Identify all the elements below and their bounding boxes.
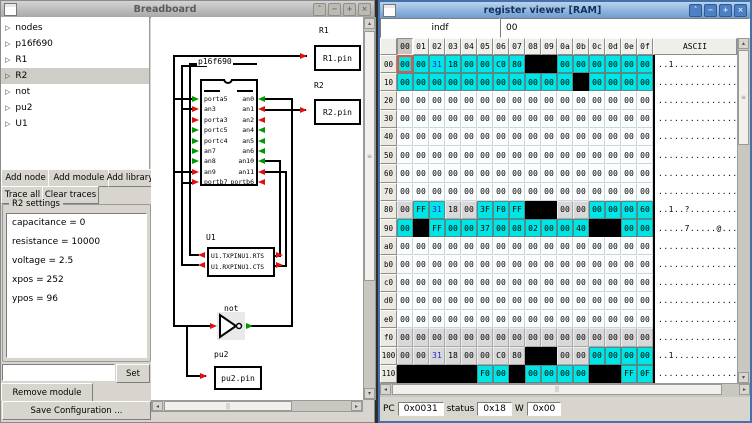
ram-cell-00-8[interactable] [525, 55, 541, 73]
ram-cell-d0-3[interactable]: 00 [445, 292, 461, 310]
scroll-up-icon[interactable]: ▴ [364, 18, 375, 29]
set-button[interactable]: Set [116, 364, 150, 383]
ram-cell-e0-9[interactable]: 00 [541, 310, 557, 328]
scroll-down-icon[interactable]: ▾ [738, 372, 749, 383]
ram-cell-60-13[interactable]: 00 [605, 164, 621, 182]
ram-cell-80-6[interactable]: F0 [493, 201, 509, 219]
tree-item-R1[interactable]: ▷R1 [1, 52, 149, 68]
ram-cell-70-8[interactable]: 00 [525, 183, 541, 201]
ram-cell-50-15[interactable]: 00 [637, 146, 653, 164]
ram-cell-100-13[interactable]: 00 [605, 347, 621, 365]
ram-cell-b0-0[interactable]: 00 [397, 255, 413, 273]
ram-cell-70-9[interactable]: 00 [541, 183, 557, 201]
ram-cell-c0-3[interactable]: 00 [445, 274, 461, 292]
ram-cell-f0-10[interactable]: 00 [557, 328, 573, 346]
ram-cell-50-13[interactable]: 00 [605, 146, 621, 164]
ram-cell-90-1[interactable] [413, 219, 429, 237]
ram-cell-d0-4[interactable]: 00 [461, 292, 477, 310]
ram-cell-b0-13[interactable]: 00 [605, 255, 621, 273]
ram-cell-20-6[interactable]: 00 [493, 91, 509, 109]
ram-cell-c0-8[interactable]: 00 [525, 274, 541, 292]
ram-cell-40-6[interactable]: 00 [493, 128, 509, 146]
ram-cell-60-3[interactable]: 00 [445, 164, 461, 182]
ram-cell-70-10[interactable]: 00 [557, 183, 573, 201]
ram-cell-10-8[interactable]: 00 [525, 73, 541, 91]
setting-entry[interactable]: xpos = 252 [7, 271, 146, 290]
scroll-up-icon[interactable]: ▴ [738, 38, 749, 49]
ram-cell-100-12[interactable]: 00 [589, 347, 605, 365]
remove-module-button[interactable]: Remove module [1, 383, 93, 402]
ram-cell-d0-13[interactable]: 00 [605, 292, 621, 310]
ram-cell-e0-5[interactable]: 00 [477, 310, 493, 328]
ram-cell-e0-14[interactable]: 00 [621, 310, 637, 328]
ram-cell-20-14[interactable]: 00 [621, 91, 637, 109]
ram-cell-80-12[interactable]: 00 [589, 201, 605, 219]
ram-cell-20-10[interactable]: 00 [557, 91, 573, 109]
minimize-button[interactable]: − [328, 3, 341, 16]
ram-cell-60-11[interactable]: 00 [573, 164, 589, 182]
ram-cell-110-6[interactable]: 00 [493, 365, 509, 383]
ram-cell-60-1[interactable]: 00 [413, 164, 429, 182]
ram-cell-f0-12[interactable]: 00 [589, 328, 605, 346]
ram-cell-10-6[interactable]: 00 [493, 73, 509, 91]
tree-item-pu2[interactable]: ▷pu2 [1, 100, 149, 116]
ram-cell-30-15[interactable]: 00 [637, 110, 653, 128]
ram-cell-100-4[interactable]: 00 [461, 347, 477, 365]
ram-cell-20-3[interactable]: 00 [445, 91, 461, 109]
module-attribute-input[interactable] [2, 364, 115, 381]
ram-cell-110-1[interactable] [413, 365, 429, 383]
ram-cell-c0-5[interactable]: 00 [477, 274, 493, 292]
r1-pin-box[interactable]: R1.pin [314, 45, 361, 71]
ram-cell-50-0[interactable]: 00 [397, 146, 413, 164]
ram-cell-70-15[interactable]: 00 [637, 183, 653, 201]
ram-cell-20-1[interactable]: 00 [413, 91, 429, 109]
pin-arrow-an6[interactable] [258, 148, 265, 154]
status-value[interactable]: 0x18 [477, 402, 512, 416]
ram-cell-b0-8[interactable]: 00 [525, 255, 541, 273]
ram-cell-30-10[interactable]: 00 [557, 110, 573, 128]
ram-cell-90-8[interactable]: 02 [525, 219, 541, 237]
ram-cell-00-11[interactable]: 00 [573, 55, 589, 73]
ram-cell-b0-14[interactable]: 00 [621, 255, 637, 273]
ram-cell-f0-7[interactable]: 00 [509, 328, 525, 346]
pin-arrow-portc5[interactable] [192, 127, 199, 133]
ram-cell-50-1[interactable]: 00 [413, 146, 429, 164]
ram-cell-30-11[interactable]: 00 [573, 110, 589, 128]
ram-cell-20-12[interactable]: 00 [589, 91, 605, 109]
ram-cell-e0-3[interactable]: 00 [445, 310, 461, 328]
ram-cell-f0-5[interactable]: 00 [477, 328, 493, 346]
ram-cell-b0-4[interactable]: 00 [461, 255, 477, 273]
expander-icon[interactable]: ▷ [5, 40, 10, 48]
ram-cell-110-14[interactable]: FF [621, 365, 637, 383]
ram-cell-100-15[interactable]: 00 [637, 347, 653, 365]
ram-cell-a0-11[interactable]: 00 [573, 237, 589, 255]
ram-cell-80-4[interactable]: 00 [461, 201, 477, 219]
ram-cell-60-15[interactable]: 00 [637, 164, 653, 182]
ram-cell-e0-0[interactable]: 00 [397, 310, 413, 328]
ram-cell-110-0[interactable] [397, 365, 413, 383]
ram-cell-d0-5[interactable]: 00 [477, 292, 493, 310]
ram-cell-30-5[interactable]: 00 [477, 110, 493, 128]
tree-item-p16f690[interactable]: ▷p16f690 [1, 36, 149, 52]
ram-cell-d0-1[interactable]: 00 [413, 292, 429, 310]
ram-cell-b0-1[interactable]: 00 [413, 255, 429, 273]
ram-cell-60-9[interactable]: 00 [541, 164, 557, 182]
ram-cell-20-15[interactable]: 00 [637, 91, 653, 109]
ram-cell-110-11[interactable]: 00 [573, 365, 589, 383]
ram-cell-10-2[interactable]: 00 [429, 73, 445, 91]
register-viewer-titlebar[interactable]: register viewer [RAM] ˄−+× [380, 2, 750, 18]
ram-cell-80-13[interactable]: 00 [605, 201, 621, 219]
canvas-hscrollbar[interactable]: ◂ || ▸ [151, 400, 363, 412]
ram-cell-10-1[interactable]: 00 [413, 73, 429, 91]
ram-cell-a0-8[interactable]: 00 [525, 237, 541, 255]
ram-cell-f0-0[interactable]: 00 [397, 328, 413, 346]
ram-cell-a0-3[interactable]: 00 [445, 237, 461, 255]
ram-cell-d0-0[interactable]: 00 [397, 292, 413, 310]
ram-cell-c0-10[interactable]: 00 [557, 274, 573, 292]
ram-cell-60-10[interactable]: 00 [557, 164, 573, 182]
ram-cell-d0-8[interactable]: 00 [525, 292, 541, 310]
ram-cell-b0-15[interactable]: 00 [637, 255, 653, 273]
ram-cell-50-2[interactable]: 00 [429, 146, 445, 164]
ram-cell-70-2[interactable]: 00 [429, 183, 445, 201]
ram-cell-a0-15[interactable]: 00 [637, 237, 653, 255]
minimize-button[interactable]: − [704, 4, 717, 17]
scroll-down-icon[interactable]: ▾ [364, 388, 375, 399]
ram-cell-10-14[interactable]: 00 [621, 73, 637, 91]
ram-cell-110-15[interactable]: 0F [637, 365, 653, 383]
ram-cell-00-13[interactable]: 00 [605, 55, 621, 73]
expander-icon[interactable]: ▷ [5, 120, 10, 128]
ram-cell-a0-14[interactable]: 00 [621, 237, 637, 255]
pin-arrow-portb7[interactable] [192, 179, 199, 185]
ram-cell-60-7[interactable]: 00 [509, 164, 525, 182]
ram-cell-20-4[interactable]: 00 [461, 91, 477, 109]
ram-cell-30-8[interactable]: 00 [525, 110, 541, 128]
ram-cell-50-4[interactable]: 00 [461, 146, 477, 164]
ram-cell-60-4[interactable]: 00 [461, 164, 477, 182]
ram-cell-60-12[interactable]: 00 [589, 164, 605, 182]
ram-cell-110-12[interactable] [589, 365, 605, 383]
ram-cell-80-3[interactable]: 18 [445, 201, 461, 219]
ram-cell-b0-10[interactable]: 00 [557, 255, 573, 273]
ram-cell-30-7[interactable]: 00 [509, 110, 525, 128]
ram-cell-b0-9[interactable]: 00 [541, 255, 557, 273]
ram-cell-90-15[interactable]: 00 [637, 219, 653, 237]
ram-cell-30-0[interactable]: 00 [397, 110, 413, 128]
ram-cell-00-0[interactable]: 00 [397, 55, 413, 73]
ram-cell-40-14[interactable]: 00 [621, 128, 637, 146]
setting-entry[interactable]: resistance = 10000 [7, 233, 146, 252]
ram-cell-100-7[interactable]: 80 [509, 347, 525, 365]
ram-cell-f0-2[interactable]: 00 [429, 328, 445, 346]
pin-arrow-an11[interactable] [258, 169, 265, 175]
ram-cell-90-0[interactable]: 00 [397, 219, 413, 237]
ram-cell-100-10[interactable]: 00 [557, 347, 573, 365]
not-gate[interactable] [217, 312, 245, 340]
ram-cell-c0-0[interactable]: 00 [397, 274, 413, 292]
maximize-button[interactable]: + [343, 3, 356, 16]
shade-button[interactable]: ˄ [689, 4, 702, 17]
ram-cell-10-12[interactable]: 00 [589, 73, 605, 91]
ram-cell-60-6[interactable]: 00 [493, 164, 509, 182]
ram-cell-80-10[interactable]: 00 [557, 201, 573, 219]
ram-cell-100-2[interactable]: 31 [429, 347, 445, 365]
ram-cell-40-9[interactable]: 00 [541, 128, 557, 146]
ram-cell-110-9[interactable]: 00 [541, 365, 557, 383]
ram-cell-100-14[interactable]: 00 [621, 347, 637, 365]
ram-cell-10-10[interactable]: 00 [557, 73, 573, 91]
ram-cell-10-7[interactable]: 00 [509, 73, 525, 91]
ram-cell-00-12[interactable]: 00 [589, 55, 605, 73]
expander-icon[interactable]: ▷ [5, 104, 10, 112]
ram-cell-80-2[interactable]: 31 [429, 201, 445, 219]
ram-cell-70-0[interactable]: 00 [397, 183, 413, 201]
ram-cell-10-4[interactable]: 00 [461, 73, 477, 91]
ram-cell-40-2[interactable]: 00 [429, 128, 445, 146]
ram-cell-80-1[interactable]: FF [413, 201, 429, 219]
ram-cell-e0-8[interactable]: 00 [525, 310, 541, 328]
ram-cell-a0-1[interactable]: 00 [413, 237, 429, 255]
ram-cell-10-3[interactable]: 00 [445, 73, 461, 91]
ram-cell-80-11[interactable]: 00 [573, 201, 589, 219]
ram-cell-70-4[interactable]: 00 [461, 183, 477, 201]
ram-cell-a0-7[interactable]: 00 [509, 237, 525, 255]
register-vscroll-thumb[interactable]: ≡ [738, 50, 749, 145]
ram-cell-30-13[interactable]: 00 [605, 110, 621, 128]
ram-cell-00-4[interactable]: 00 [461, 55, 477, 73]
ram-cell-e0-6[interactable]: 00 [493, 310, 509, 328]
ram-cell-90-7[interactable]: 08 [509, 219, 525, 237]
ram-cell-70-11[interactable]: 00 [573, 183, 589, 201]
ram-cell-00-2[interactable]: 31 [429, 55, 445, 73]
ram-cell-f0-1[interactable]: 00 [413, 328, 429, 346]
pc-value[interactable]: 0x0031 [398, 402, 444, 416]
ram-cell-c0-1[interactable]: 00 [413, 274, 429, 292]
ram-cell-a0-13[interactable]: 00 [605, 237, 621, 255]
ram-cell-d0-2[interactable]: 00 [429, 292, 445, 310]
ram-cell-e0-1[interactable]: 00 [413, 310, 429, 328]
ram-cell-40-13[interactable]: 00 [605, 128, 621, 146]
ram-cell-60-5[interactable]: 00 [477, 164, 493, 182]
ram-cell-50-3[interactable]: 00 [445, 146, 461, 164]
ram-cell-c0-4[interactable]: 00 [461, 274, 477, 292]
ram-cell-100-0[interactable]: 00 [397, 347, 413, 365]
maximize-button[interactable]: + [719, 4, 732, 17]
ram-cell-c0-7[interactable]: 00 [509, 274, 525, 292]
ram-cell-40-12[interactable]: 00 [589, 128, 605, 146]
expander-icon[interactable]: ▷ [5, 88, 10, 96]
ram-cell-50-7[interactable]: 00 [509, 146, 525, 164]
ram-cell-20-11[interactable]: 00 [573, 91, 589, 109]
expander-icon[interactable]: ▷ [5, 24, 10, 32]
ram-cell-f0-4[interactable]: 00 [461, 328, 477, 346]
ram-cell-c0-13[interactable]: 00 [605, 274, 621, 292]
pin-arrow-an4[interactable] [258, 127, 265, 133]
ram-cell-c0-11[interactable]: 00 [573, 274, 589, 292]
ram-cell-50-14[interactable]: 00 [621, 146, 637, 164]
ram-cell-c0-12[interactable]: 00 [589, 274, 605, 292]
ram-cell-90-6[interactable]: 00 [493, 219, 509, 237]
ram-cell-20-2[interactable]: 00 [429, 91, 445, 109]
pin-arrow-portb6[interactable] [258, 179, 265, 185]
pin-arrow-an5[interactable] [258, 138, 265, 144]
pin-arrow-porta3[interactable] [192, 117, 199, 123]
ram-cell-90-5[interactable]: 37 [477, 219, 493, 237]
ram-cell-80-14[interactable]: 00 [621, 201, 637, 219]
ram-cell-100-9[interactable] [541, 347, 557, 365]
close-button[interactable]: × [734, 4, 747, 17]
ram-cell-80-8[interactable] [525, 201, 541, 219]
ram-cell-110-4[interactable] [461, 365, 477, 383]
ram-cell-a0-6[interactable]: 00 [493, 237, 509, 255]
ram-cell-70-1[interactable]: 00 [413, 183, 429, 201]
ram-cell-90-11[interactable]: 40 [573, 219, 589, 237]
pin-arrow-an7[interactable] [192, 148, 199, 154]
ram-cell-40-4[interactable]: 00 [461, 128, 477, 146]
ram-cell-30-1[interactable]: 00 [413, 110, 429, 128]
ram-cell-e0-7[interactable]: 00 [509, 310, 525, 328]
pin-arrow-an8[interactable] [192, 158, 199, 164]
ram-cell-f0-9[interactable]: 00 [541, 328, 557, 346]
ram-cell-70-6[interactable]: 00 [493, 183, 509, 201]
r2-pin-box[interactable]: R2.pin [314, 99, 361, 125]
ram-cell-00-15[interactable]: 00 [637, 55, 653, 73]
ram-cell-f0-8[interactable]: 00 [525, 328, 541, 346]
ram-cell-c0-9[interactable]: 00 [541, 274, 557, 292]
ram-cell-a0-2[interactable]: 00 [429, 237, 445, 255]
canvas-hscroll-thumb[interactable]: || [164, 401, 292, 411]
ram-cell-b0-12[interactable]: 00 [589, 255, 605, 273]
ram-cell-40-8[interactable]: 00 [525, 128, 541, 146]
ram-cell-00-5[interactable]: 00 [477, 55, 493, 73]
ram-cell-a0-5[interactable]: 00 [477, 237, 493, 255]
ram-cell-70-7[interactable]: 00 [509, 183, 525, 201]
pin-arrow-an10[interactable] [258, 158, 265, 164]
ram-cell-a0-0[interactable]: 00 [397, 237, 413, 255]
ram-cell-a0-10[interactable]: 00 [557, 237, 573, 255]
ram-cell-00-14[interactable]: 00 [621, 55, 637, 73]
ram-cell-70-12[interactable]: 00 [589, 183, 605, 201]
setting-entry[interactable]: voltage = 2.5 [7, 252, 146, 271]
pin-arrow-porta5[interactable] [192, 96, 199, 102]
ram-cell-00-6[interactable]: C0 [493, 55, 509, 73]
ram-cell-e0-4[interactable]: 00 [461, 310, 477, 328]
scroll-left-icon[interactable]: ◂ [152, 401, 163, 411]
ram-cell-c0-15[interactable]: 00 [637, 274, 653, 292]
ram-cell-00-1[interactable]: 00 [413, 55, 429, 73]
register-name-field[interactable]: indf [380, 18, 500, 38]
ram-cell-d0-9[interactable]: 00 [541, 292, 557, 310]
scroll-left-icon[interactable]: ◂ [380, 384, 391, 395]
ram-cell-100-5[interactable]: 00 [477, 347, 493, 365]
ram-cell-10-15[interactable]: 00 [637, 73, 653, 91]
ram-cell-10-5[interactable]: 00 [477, 73, 493, 91]
ram-cell-00-3[interactable]: 18 [445, 55, 461, 73]
ram-cell-10-11[interactable] [573, 73, 589, 91]
ram-cell-e0-12[interactable]: 00 [589, 310, 605, 328]
ram-cell-f0-14[interactable]: 00 [621, 328, 637, 346]
ram-cell-50-6[interactable]: 00 [493, 146, 509, 164]
ram-cell-20-5[interactable]: 00 [477, 91, 493, 109]
ram-cell-50-12[interactable]: 00 [589, 146, 605, 164]
ram-cell-50-11[interactable]: 00 [573, 146, 589, 164]
ram-cell-50-8[interactable]: 00 [525, 146, 541, 164]
tree-item-U1[interactable]: ▷U1 [1, 116, 149, 132]
ram-cell-d0-10[interactable]: 00 [557, 292, 573, 310]
ram-cell-50-9[interactable]: 00 [541, 146, 557, 164]
ram-cell-e0-15[interactable]: 00 [637, 310, 653, 328]
shade-button[interactable]: ˄ [313, 3, 326, 16]
ram-cell-d0-15[interactable]: 00 [637, 292, 653, 310]
scroll-right-icon[interactable]: ▸ [351, 401, 362, 411]
u1-box[interactable]: U1.TXPINU1.RTS U1.RXPINU1.CTS [207, 247, 275, 277]
ram-cell-40-15[interactable]: 00 [637, 128, 653, 146]
ram-cell-e0-10[interactable]: 00 [557, 310, 573, 328]
save-configuration-button[interactable]: Save Configuration ... [2, 401, 151, 420]
add-module-button[interactable]: Add module [48, 169, 110, 187]
expander-icon[interactable]: ▷ [5, 56, 10, 64]
ram-cell-c0-6[interactable]: 00 [493, 274, 509, 292]
ram-cell-90-9[interactable]: 00 [541, 219, 557, 237]
ram-cell-b0-2[interactable]: 00 [429, 255, 445, 273]
ram-cell-90-4[interactable]: 00 [461, 219, 477, 237]
ram-cell-110-2[interactable] [429, 365, 445, 383]
ram-cell-60-14[interactable]: 00 [621, 164, 637, 182]
settings-list[interactable]: capacitance = 0resistance = 10000voltage… [6, 213, 147, 358]
pu2-pin-box[interactable]: pu2.pin [214, 366, 262, 390]
ram-cell-80-5[interactable]: 3F [477, 201, 493, 219]
canvas-vscrollbar[interactable]: ▴ ≡ ▾ [363, 17, 376, 400]
pin-arrow-an1[interactable] [258, 106, 265, 112]
ram-cell-f0-6[interactable]: 00 [493, 328, 509, 346]
ram-cell-30-2[interactable]: 00 [429, 110, 445, 128]
ram-cell-10-0[interactable]: 00 [397, 73, 413, 91]
ram-cell-80-9[interactable] [541, 201, 557, 219]
tree-item-R2[interactable]: ▷R2 [1, 68, 149, 84]
ram-cell-a0-9[interactable]: 00 [541, 237, 557, 255]
ram-cell-d0-14[interactable]: 00 [621, 292, 637, 310]
ram-cell-00-10[interactable]: 00 [557, 55, 573, 73]
ram-cell-c0-14[interactable]: 00 [621, 274, 637, 292]
ram-cell-90-3[interactable]: 00 [445, 219, 461, 237]
ram-cell-d0-6[interactable]: 00 [493, 292, 509, 310]
ram-cell-110-7[interactable] [509, 365, 525, 383]
ram-cell-50-10[interactable]: 00 [557, 146, 573, 164]
ram-cell-100-11[interactable]: 00 [573, 347, 589, 365]
ram-cell-00-7[interactable]: 80 [509, 55, 525, 73]
pin-arrow-an0[interactable] [258, 96, 265, 102]
ram-cell-f0-11[interactable]: 00 [573, 328, 589, 346]
ram-cell-30-4[interactable]: 00 [461, 110, 477, 128]
ram-cell-40-11[interactable]: 00 [573, 128, 589, 146]
ram-cell-40-10[interactable]: 00 [557, 128, 573, 146]
ram-cell-f0-3[interactable]: 00 [445, 328, 461, 346]
ram-cell-10-13[interactable]: 00 [605, 73, 621, 91]
ram-cell-110-13[interactable] [605, 365, 621, 383]
tree-item-not[interactable]: ▷not [1, 84, 149, 100]
ram-cell-a0-4[interactable]: 00 [461, 237, 477, 255]
ram-cell-90-12[interactable] [589, 219, 605, 237]
ram-cell-40-5[interactable]: 00 [477, 128, 493, 146]
ram-cell-40-7[interactable]: 00 [509, 128, 525, 146]
ram-cell-30-9[interactable]: 00 [541, 110, 557, 128]
register-value-field[interactable]: 00 [500, 18, 750, 38]
breadboard-titlebar[interactable]: Breadboard ˄−+× [1, 1, 374, 18]
